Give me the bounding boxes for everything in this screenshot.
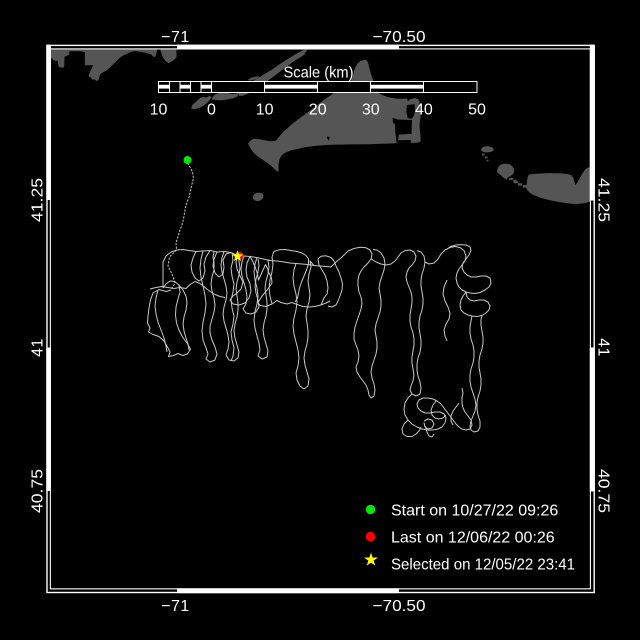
svg-text:Selected on 12/05/22 23:41: Selected on 12/05/22 23:41 xyxy=(391,557,575,574)
svg-text:−71: −71 xyxy=(161,598,190,615)
svg-text:40: 40 xyxy=(415,102,433,119)
svg-text:40.75: 40.75 xyxy=(30,469,47,513)
svg-text:41: 41 xyxy=(30,338,47,357)
svg-text:Last on 12/06/22 00:26: Last on 12/06/22 00:26 xyxy=(391,530,555,547)
svg-text:−70.50: −70.50 xyxy=(373,598,426,615)
svg-text:40.75: 40.75 xyxy=(595,469,612,513)
svg-text:0: 0 xyxy=(207,102,216,119)
svg-text:−71: −71 xyxy=(161,29,190,46)
svg-text:−70.50: −70.50 xyxy=(373,29,426,46)
svg-text:41: 41 xyxy=(595,338,612,357)
svg-text:Start on 10/27/22 09:26: Start on 10/27/22 09:26 xyxy=(391,503,558,520)
svg-text:10: 10 xyxy=(256,102,274,119)
svg-text:10: 10 xyxy=(150,102,168,119)
svg-text:Scale (km): Scale (km) xyxy=(284,65,354,82)
svg-text:30: 30 xyxy=(362,102,380,119)
svg-text:50: 50 xyxy=(468,102,486,119)
svg-text:41.25: 41.25 xyxy=(595,178,612,222)
svg-text:20: 20 xyxy=(309,102,327,119)
svg-text:41.25: 41.25 xyxy=(30,178,47,222)
